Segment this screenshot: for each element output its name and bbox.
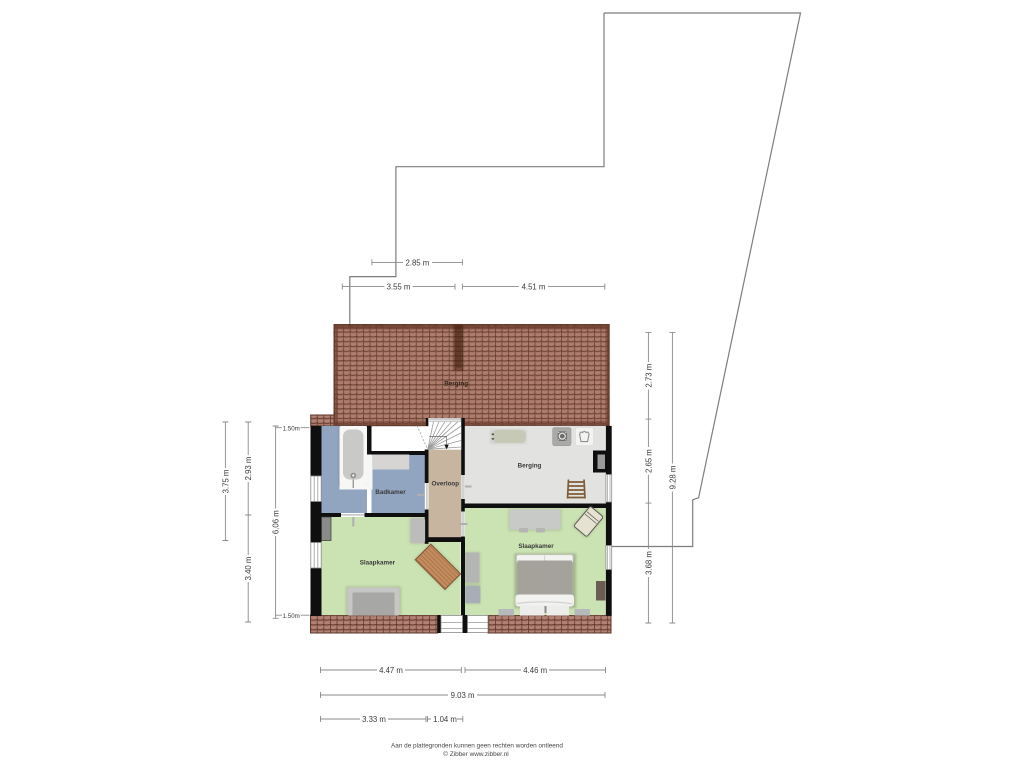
svg-text:3.68 m: 3.68 m (644, 551, 653, 575)
svg-text:Overloop: Overloop (431, 480, 459, 487)
svg-text:4.51 m: 4.51 m (522, 283, 546, 292)
svg-text:2.93 m: 2.93 m (244, 457, 253, 481)
svg-text:6.06 m: 6.06 m (272, 510, 281, 534)
svg-text:2.73 m: 2.73 m (644, 364, 653, 388)
svg-text:1.50m: 1.50m (283, 613, 300, 620)
svg-text:3.55 m: 3.55 m (387, 283, 411, 292)
svg-text:Badkamer: Badkamer (375, 489, 406, 496)
svg-text:© Zibber www.zibber.nl: © Zibber www.zibber.nl (443, 750, 508, 758)
svg-text:1.04 m: 1.04 m (433, 715, 457, 724)
svg-text:3.75 m: 3.75 m (221, 470, 230, 494)
svg-text:3.40 m: 3.40 m (244, 557, 253, 581)
svg-text:3.33 m: 3.33 m (362, 715, 386, 724)
svg-text:4.47 m: 4.47 m (379, 666, 403, 675)
svg-text:9.03 m: 9.03 m (451, 691, 475, 700)
svg-text:9.28 m: 9.28 m (668, 466, 677, 490)
svg-text:2.85 m: 2.85 m (405, 258, 429, 267)
svg-text:2.65 m: 2.65 m (644, 449, 653, 473)
svg-text:Aan de plattegronden kunnen ge: Aan de plattegronden kunnen geen rechten… (391, 743, 563, 750)
svg-text:Slaapkamer: Slaapkamer (518, 543, 554, 550)
svg-text:Berging: Berging (518, 463, 542, 470)
svg-text:Berging: Berging (444, 381, 468, 388)
svg-text:Slaapkamer: Slaapkamer (360, 559, 396, 566)
svg-text:4.46 m: 4.46 m (523, 666, 547, 675)
svg-text:1.50m: 1.50m (283, 425, 300, 432)
